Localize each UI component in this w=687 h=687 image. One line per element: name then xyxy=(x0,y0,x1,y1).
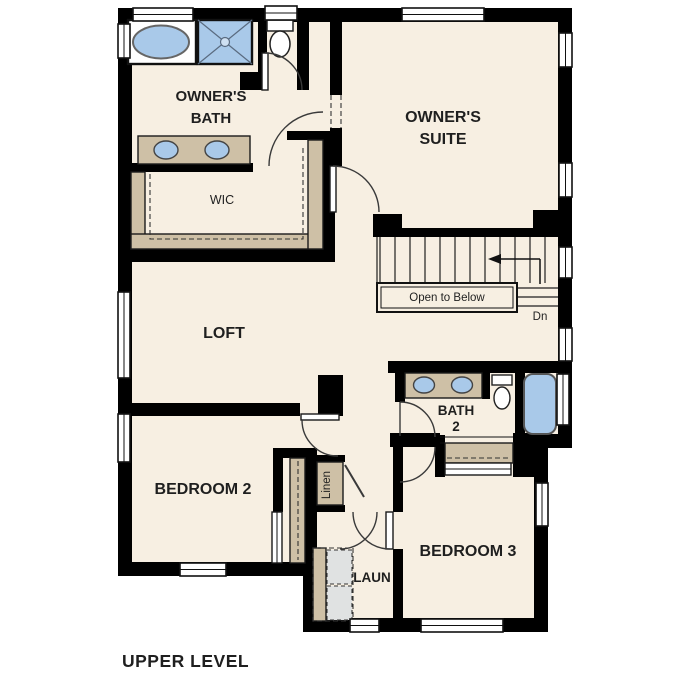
upper-level-floor-plan: Open to Below Dn xyxy=(0,0,687,687)
window xyxy=(536,483,548,526)
window xyxy=(559,328,572,361)
window xyxy=(350,619,379,632)
level-title: UPPER LEVEL xyxy=(122,651,249,671)
open-to-below-label: Open to Below xyxy=(409,292,485,304)
window xyxy=(559,163,572,197)
owners-bath-label-line1: OWNER'S xyxy=(175,88,246,105)
bath2-label-line2: 2 xyxy=(452,419,460,434)
exterior-walls xyxy=(125,15,565,625)
wic-label: WIC xyxy=(210,193,234,207)
washer-dryer-icon xyxy=(313,548,353,621)
soaking-tub-icon xyxy=(524,374,556,434)
loft-label: LOFT xyxy=(203,325,245,342)
window xyxy=(265,6,297,20)
shower-icon xyxy=(198,20,252,64)
bath2-label-line1: BATH xyxy=(438,403,475,418)
bathtub-icon xyxy=(128,20,196,64)
bedroom3-closet xyxy=(440,437,513,475)
toilet-icon xyxy=(492,375,512,409)
linen-label: Linen xyxy=(321,471,333,499)
laundry-label: LAUN xyxy=(353,570,391,585)
window xyxy=(118,414,130,462)
bedroom2-label: BEDROOM 2 xyxy=(155,481,252,498)
double-sink-vanity-icon xyxy=(138,136,250,164)
window xyxy=(180,563,226,576)
stairs-down-label: Dn xyxy=(533,311,548,323)
owners-suite-label-line1: OWNER'S xyxy=(405,109,481,126)
floor-plan-page: Open to Below Dn xyxy=(0,0,687,687)
window xyxy=(559,247,572,278)
double-sink-vanity-icon xyxy=(405,373,482,398)
window xyxy=(402,8,484,21)
window xyxy=(557,374,569,425)
bedroom3-label: BEDROOM 3 xyxy=(420,543,517,560)
window xyxy=(133,8,193,21)
window xyxy=(118,292,130,378)
window xyxy=(118,24,130,58)
open-to-below-rail: Open to Below xyxy=(377,283,517,312)
window xyxy=(421,619,503,632)
owners-suite-label-line2: SUITE xyxy=(419,131,466,148)
owners-bath-label-line2: BATH xyxy=(191,110,232,127)
window xyxy=(559,33,572,67)
